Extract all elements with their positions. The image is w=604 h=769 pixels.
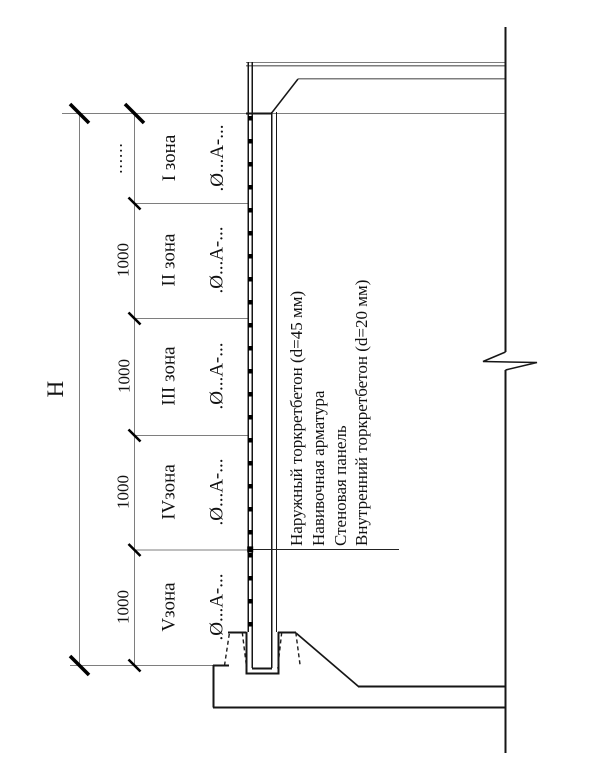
dashed-socket-edges-group: [225, 633, 301, 669]
floor-slab-slope-line: [296, 633, 359, 687]
break-symbol: [483, 352, 537, 370]
zone-5-pitch-label: 1000: [114, 550, 134, 665]
zone-2-pitch-label: 1000: [114, 203, 134, 318]
zone-5-name: Vзона: [158, 550, 182, 665]
zone-5-rebar-spec: .Ø...А-...: [206, 550, 230, 665]
wall-section-drawing: H ...... 1000 1000 1000 1000 I зона II з…: [0, 0, 604, 769]
callout-inner-shotcrete: Внутренний торкретбетон (d=20 мм): [352, 286, 372, 546]
callout-outer-shotcrete: Наружный торкретбетон (d=45 мм): [287, 286, 307, 546]
overall-height-dim-label: H: [43, 113, 69, 665]
zone-2-name: II зона: [158, 203, 182, 318]
zone-4-pitch-label: 1000: [114, 435, 134, 550]
zone-4-name: IVзона: [158, 435, 182, 550]
callout-wall-panel: Стеновая панель: [331, 286, 351, 546]
zone-3-rebar-spec: .Ø...А-...: [206, 318, 230, 435]
callout-winding-reinforcement: Навивочная арматура: [309, 286, 329, 546]
zone-1-rebar-spec: .Ø...А-...: [206, 113, 230, 203]
socket-outer-right-dashed: [296, 633, 300, 667]
zone-1-pitch-dots: ......: [107, 113, 127, 203]
zone-2-rebar-spec: .Ø...А-...: [206, 203, 230, 318]
zone-1-name: I зона: [158, 113, 182, 203]
leader-anchor-dot: [247, 546, 253, 552]
roof-haunch-diagonal: [272, 79, 298, 113]
zone-3-pitch-label: 1000: [115, 318, 135, 435]
zone-3-name: III зона: [158, 318, 182, 435]
zone-4-rebar-spec: .Ø...А-...: [206, 435, 230, 550]
